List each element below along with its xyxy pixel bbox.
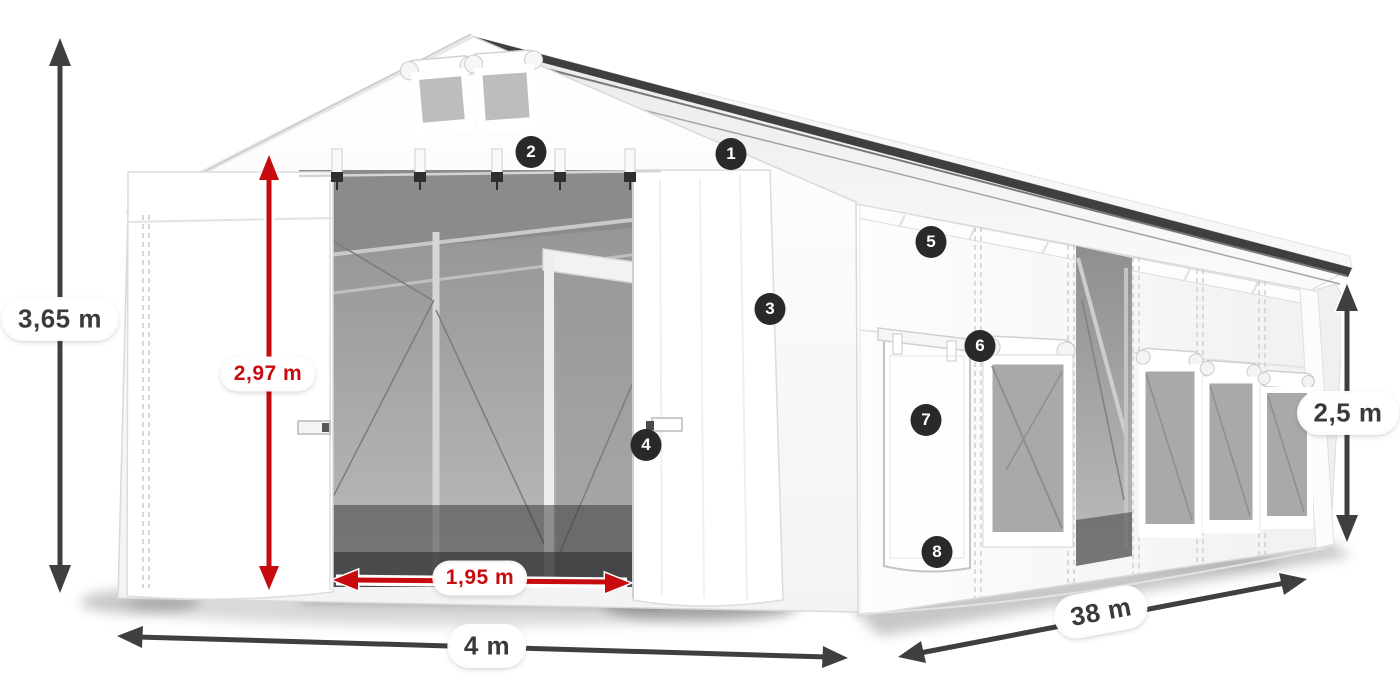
dim-label-side-height: 2,5 m	[1300, 394, 1397, 433]
tent-illustration	[0, 0, 1400, 700]
tent-dimension-diagram: 3,65 m 2,97 m 1,95 m 4 m 38 m 2,5 m 1 2 …	[0, 0, 1400, 700]
right-door-leaf	[633, 170, 783, 606]
callout-badge-7: 7	[911, 404, 942, 436]
callout-badge-6: 6	[965, 330, 996, 362]
dim-label-width: 4 m	[450, 627, 524, 666]
side-opening	[1076, 246, 1132, 566]
entrance-opening	[299, 170, 662, 588]
dim-label-entrance-width: 1,95 m	[435, 563, 525, 593]
side-window-2	[1136, 348, 1204, 534]
right-door-handle	[652, 418, 682, 431]
side-window-3	[1200, 360, 1262, 530]
callout-badge-8: 8	[922, 536, 953, 568]
dim-label-entrance-height: 2,97 m	[223, 359, 313, 389]
callout-badge-4: 4	[631, 429, 662, 461]
side-window-4	[1258, 370, 1315, 526]
callout-badge-5: 5	[916, 226, 947, 258]
callout-badge-3: 3	[755, 293, 786, 325]
side-window-1	[982, 336, 1076, 547]
callout-badge-2: 2	[516, 136, 547, 168]
dim-label-total-height: 3,65 m	[4, 300, 116, 339]
callout-badge-1: 1	[716, 138, 747, 170]
side-door	[878, 328, 976, 572]
